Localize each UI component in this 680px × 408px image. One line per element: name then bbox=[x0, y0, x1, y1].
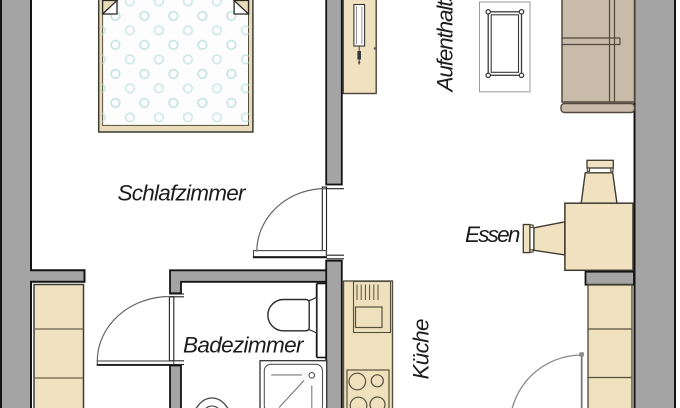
svg-text:Aufenthaltsraum: Aufenthaltsraum bbox=[433, 0, 458, 94]
svg-text:Badezimmer: Badezimmer bbox=[183, 333, 305, 358]
svg-text:Essen: Essen bbox=[465, 222, 520, 247]
svg-text:Schlafzimmer: Schlafzimmer bbox=[118, 181, 248, 206]
svg-text:Küche: Küche bbox=[409, 319, 434, 379]
